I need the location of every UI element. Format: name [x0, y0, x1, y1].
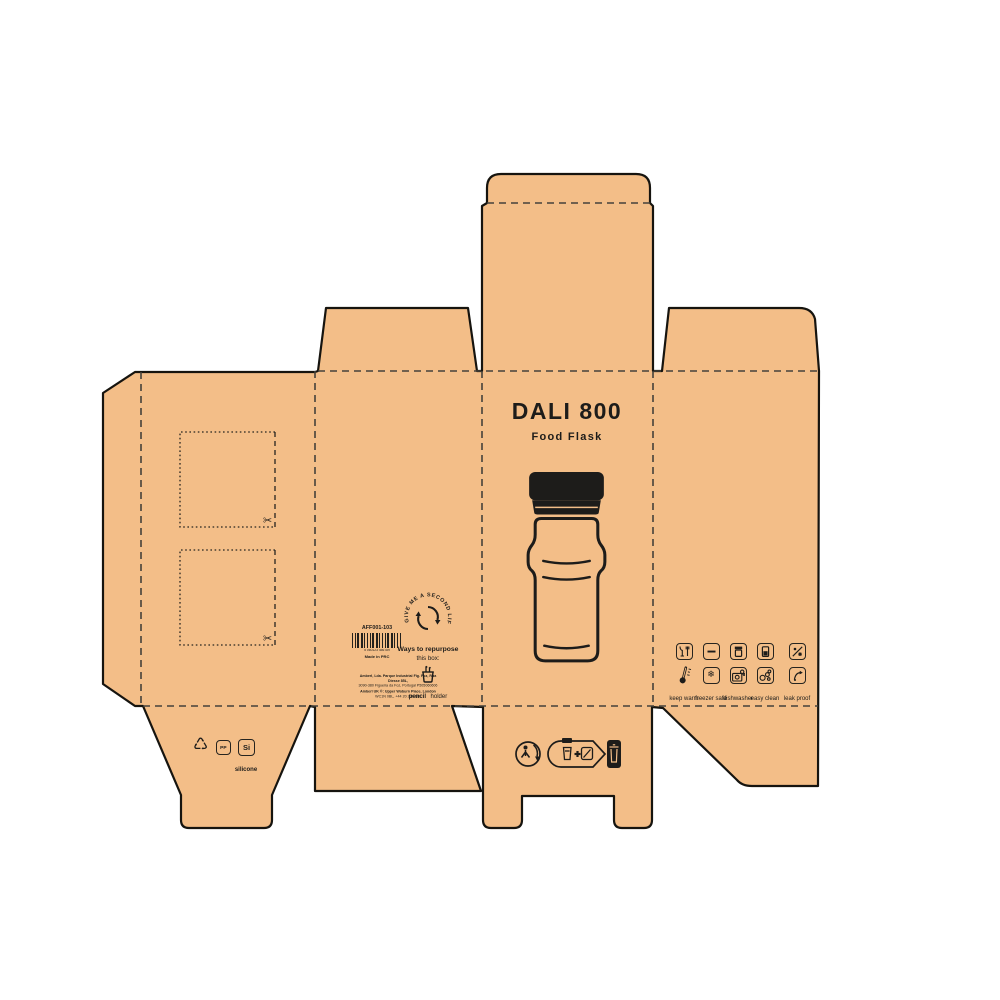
svg-text:GIVE ME A SECOND LIFE: GIVE ME A SECOND LIFE: [402, 590, 452, 625]
scissors-icon: ✂: [263, 632, 272, 645]
badge-circular-text: GIVE ME A SECOND LIFE: [402, 590, 452, 625]
pp-label: PP: [220, 745, 226, 750]
freezer-safe-icon: ❄: [703, 667, 720, 684]
si-caption: silicone: [235, 767, 257, 773]
origin-label: Made in PRC: [354, 655, 400, 659]
product-title: DALI 800: [467, 398, 667, 425]
icon-caption: easy clean: [751, 696, 780, 702]
address-line: WC1N 0BL, +44 20 236 180: [355, 694, 440, 699]
product-code: AFF001-103: [353, 624, 401, 630]
dieline-outline: [103, 174, 819, 828]
sorting-info-tag: [548, 738, 621, 768]
second-life-badge: GIVE ME A SECOND LIFE: [402, 590, 454, 642]
food-safe-icon: [676, 643, 693, 660]
easy-clean-icon: [757, 667, 774, 684]
barcode: [352, 633, 402, 648]
recycle-mobius-icon: ♺: [193, 737, 208, 754]
address-line: Amberl, Lda. Parque Industrial Fig. Foz,…: [355, 674, 440, 683]
cup-glyph: [564, 748, 572, 760]
manufacturer-address: Amberl, Lda. Parque Industrial Fig. Foz,…: [355, 674, 440, 699]
cold-content-icon: [757, 643, 774, 660]
hot-content-icon: [730, 643, 747, 660]
cycle-arrows-icon: [418, 607, 438, 629]
flask-illustration: [516, 470, 618, 672]
product-subtitle: Food Flask: [467, 431, 667, 443]
pp-material-icon: PP: [216, 740, 231, 755]
icon-caption: leak proof: [784, 696, 810, 702]
dishwasher-safe-icon: [730, 667, 747, 684]
plus-sign: [575, 751, 581, 757]
scissors-icon: ✂: [263, 514, 272, 527]
carton-glyph: [582, 748, 593, 760]
si-label: Si: [243, 743, 250, 752]
disposal-icons: [515, 738, 621, 770]
max-temperature-icon: [676, 665, 693, 685]
flask-cap: [529, 472, 604, 500]
triman-icon: [516, 742, 540, 766]
leak-proof-icon: [789, 667, 806, 684]
barcode-digits: 5 060123 456789: [355, 649, 399, 652]
packaging-dieline-artboard: ✂ ✂ DALI 800 Food Flask GIVE ME A SECOND…: [0, 0, 1000, 1000]
snowflake-icon: ❄: [707, 671, 715, 680]
si-material-icon: Si: [238, 739, 255, 756]
capacity-icon: [703, 643, 720, 660]
flask-body: [528, 518, 605, 660]
dieline-drawing: [0, 0, 1000, 1000]
address-line: 3090-380 Figueira da Foz, Portugal P5050…: [355, 683, 440, 688]
hot-cold-icon: [789, 643, 806, 660]
